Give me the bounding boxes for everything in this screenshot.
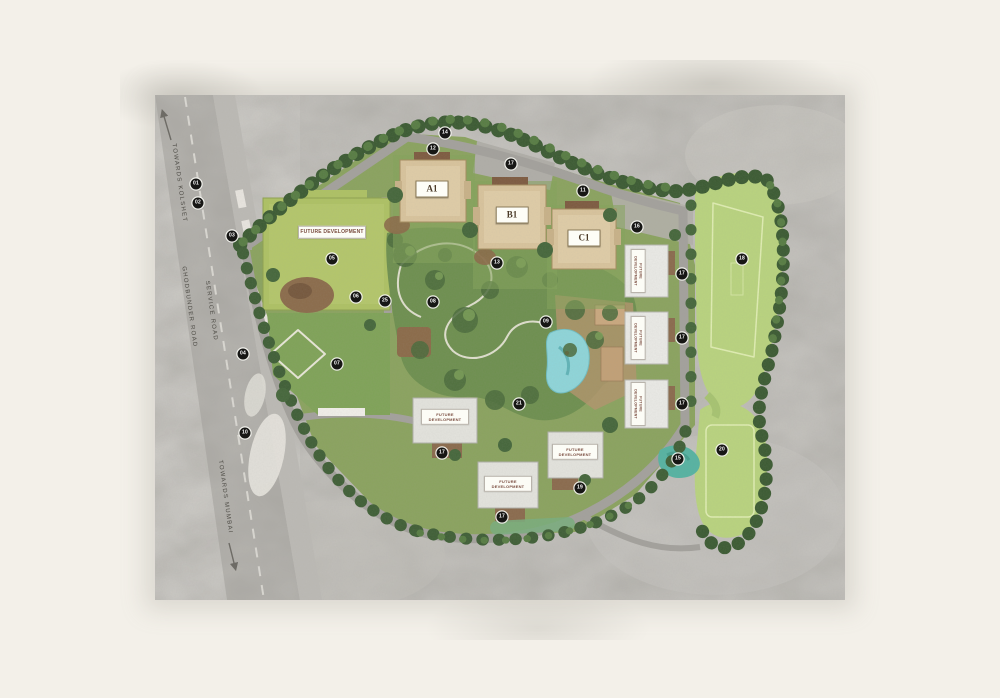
scan-noise	[155, 95, 845, 600]
terrain-artwork	[155, 95, 845, 600]
amenity-marker: 06	[351, 292, 362, 303]
amenity-marker: 14	[440, 128, 451, 139]
amenity-marker: 21	[514, 399, 525, 410]
future-development-label: FUTURE DEVELOPMENT	[484, 476, 532, 492]
amenity-marker: 25	[380, 296, 391, 307]
amenity-marker: 19	[575, 483, 586, 494]
amenity-marker: 08	[428, 297, 439, 308]
amenity-marker: 10	[240, 428, 251, 439]
future-development-label: FUTURE DEVELOPMENT	[298, 226, 366, 239]
future-development-label: FUTURE DEVELOPMENT	[630, 249, 645, 293]
future-development-label: FUTURE DEVELOPMENT	[421, 409, 469, 425]
tower-label: C1	[568, 230, 601, 247]
amenity-marker: 17	[437, 448, 448, 459]
site-plan: 0102030410050625070812141711161309211717…	[155, 95, 845, 600]
amenity-marker: 20	[717, 445, 728, 456]
amenity-marker: 17	[506, 159, 517, 170]
amenity-marker: 17	[677, 333, 688, 344]
amenity-marker: 18	[737, 254, 748, 265]
amenity-marker: 05	[327, 254, 338, 265]
amenity-marker: 17	[677, 269, 688, 280]
amenity-marker: 16	[632, 222, 643, 233]
amenity-marker: 13	[492, 258, 503, 269]
amenity-marker: 17	[677, 399, 688, 410]
tower-label: A1	[416, 181, 449, 198]
amenity-marker: 07	[332, 359, 343, 370]
future-development-label: FUTURE DEVELOPMENT	[630, 316, 645, 360]
future-development-label: FUTURE DEVELOPMENT	[552, 444, 598, 460]
amenity-marker: 02	[193, 198, 204, 209]
tower-label: B1	[496, 207, 529, 224]
future-development-label: FUTURE DEVELOPMENT	[630, 382, 645, 426]
amenity-marker: 12	[428, 144, 439, 155]
amenity-marker: 04	[238, 349, 249, 360]
amenity-marker: 01	[191, 179, 202, 190]
amenity-marker: 03	[227, 231, 238, 242]
amenity-marker: 15	[673, 454, 684, 465]
amenity-marker: 17	[497, 512, 508, 523]
amenity-marker: 09	[541, 317, 552, 328]
amenity-marker: 11	[578, 186, 589, 197]
scanned-masterplan-page: 0102030410050625070812141711161309211717…	[0, 0, 1000, 698]
